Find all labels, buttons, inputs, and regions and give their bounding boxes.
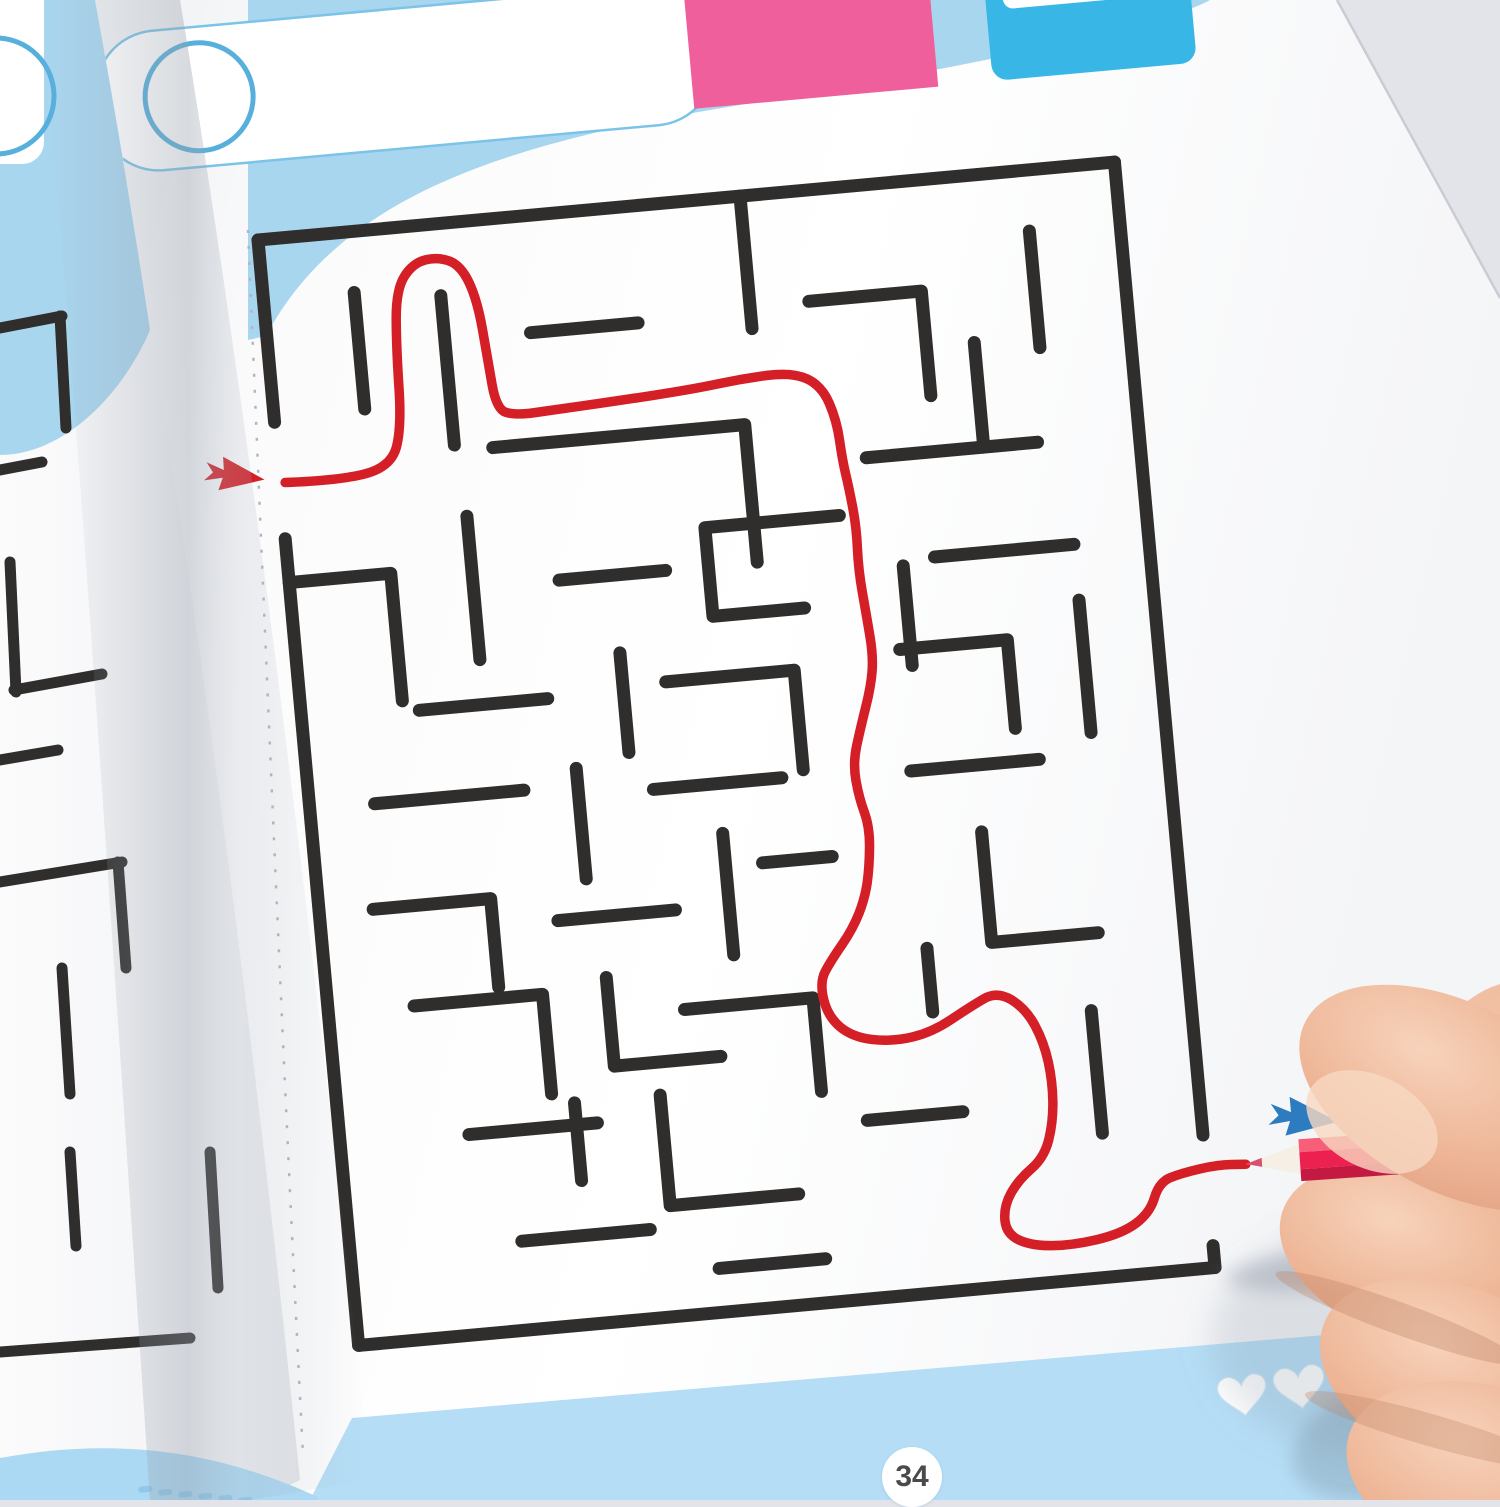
maze-wall xyxy=(620,653,629,753)
left-maze-wall xyxy=(60,316,66,428)
page-number: 34 xyxy=(895,1460,928,1494)
maze-wall xyxy=(763,856,833,862)
left-maze-wall xyxy=(10,562,16,692)
left-maze-wall xyxy=(70,1152,76,1246)
photo-scene: 34 xyxy=(0,0,1500,1500)
maze-wall xyxy=(575,1103,582,1181)
maze-wall xyxy=(867,1112,963,1121)
maze-wall xyxy=(927,948,933,1012)
page-number-badge: 34 xyxy=(882,1447,942,1507)
